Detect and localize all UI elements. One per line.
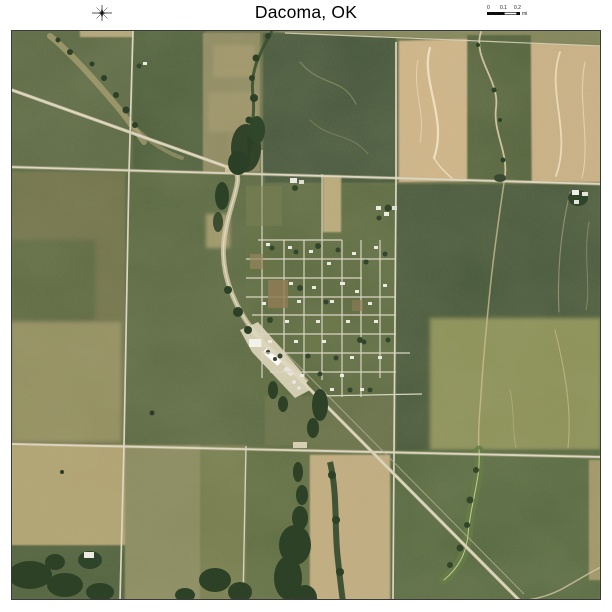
scale-tick-label: 0.2 xyxy=(514,6,521,11)
scale-tick-label: 0.1 xyxy=(500,6,507,11)
scale-tick-label: 0 xyxy=(487,6,490,11)
aerial-photo-canvas xyxy=(11,30,601,600)
pond xyxy=(60,470,64,474)
scale-bar-rule xyxy=(487,12,520,15)
map-header: Dacoma, OK 0 0.1 0.2 mi xyxy=(0,0,612,30)
scale-unit-label: mi xyxy=(522,12,527,17)
scale-bar: 0 0.1 0.2 mi xyxy=(486,6,538,22)
scale-bar-segment xyxy=(504,12,517,15)
aerial-map-page: Dacoma, OK 0 0.1 0.2 mi xyxy=(0,0,612,612)
pond xyxy=(150,411,155,416)
aerial-photo xyxy=(11,30,601,600)
